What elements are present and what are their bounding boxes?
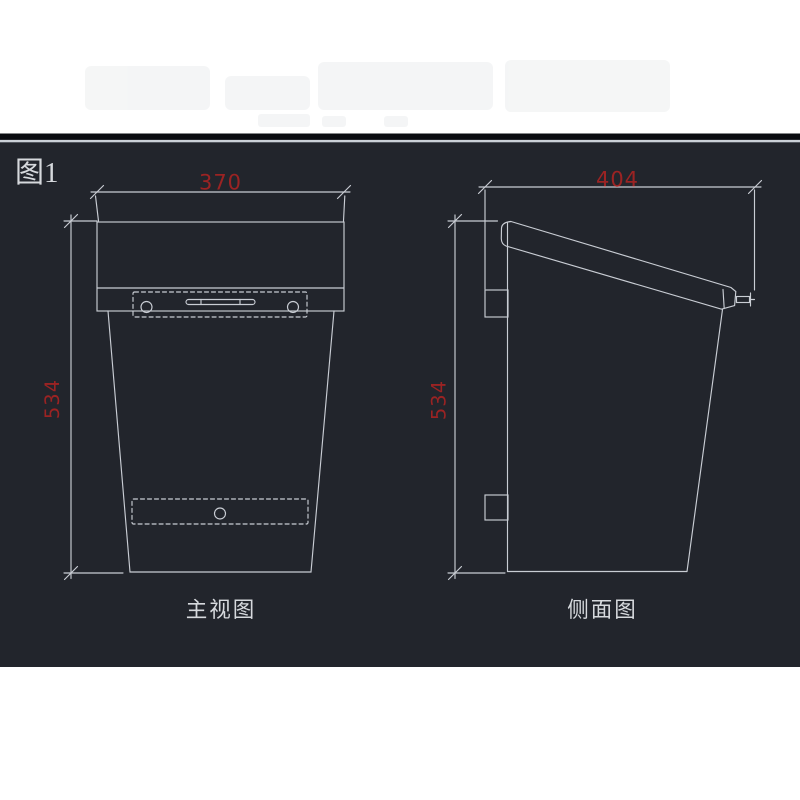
watermark-ghost-blob (505, 60, 670, 112)
front-view-label: 主视图 (186, 598, 257, 622)
cad-panel-background (0, 134, 800, 668)
figure-label: 图1 (15, 157, 59, 189)
panel-top-light-rule (0, 140, 800, 142)
panel-top-dark-rule (0, 134, 800, 140)
watermark-ghost-blob (85, 66, 210, 110)
cad-drawing-page: 图1 (0, 0, 800, 800)
watermark-ghost-blob (225, 76, 310, 110)
side-height-dim-text: 534 (428, 380, 451, 420)
watermark-ghost-blob (258, 114, 310, 127)
front-height-dim-text: 534 (41, 379, 64, 419)
watermark-ghost-blob (322, 116, 346, 127)
watermark-ghost-blob (318, 62, 493, 110)
side-view-label: 侧面图 (567, 598, 638, 622)
side-depth-dim-text: 404 (596, 168, 639, 192)
watermark-ghost-blob (384, 116, 408, 127)
drawing-canvas: 图1 (0, 0, 800, 800)
front-width-dim-text: 370 (199, 171, 242, 195)
